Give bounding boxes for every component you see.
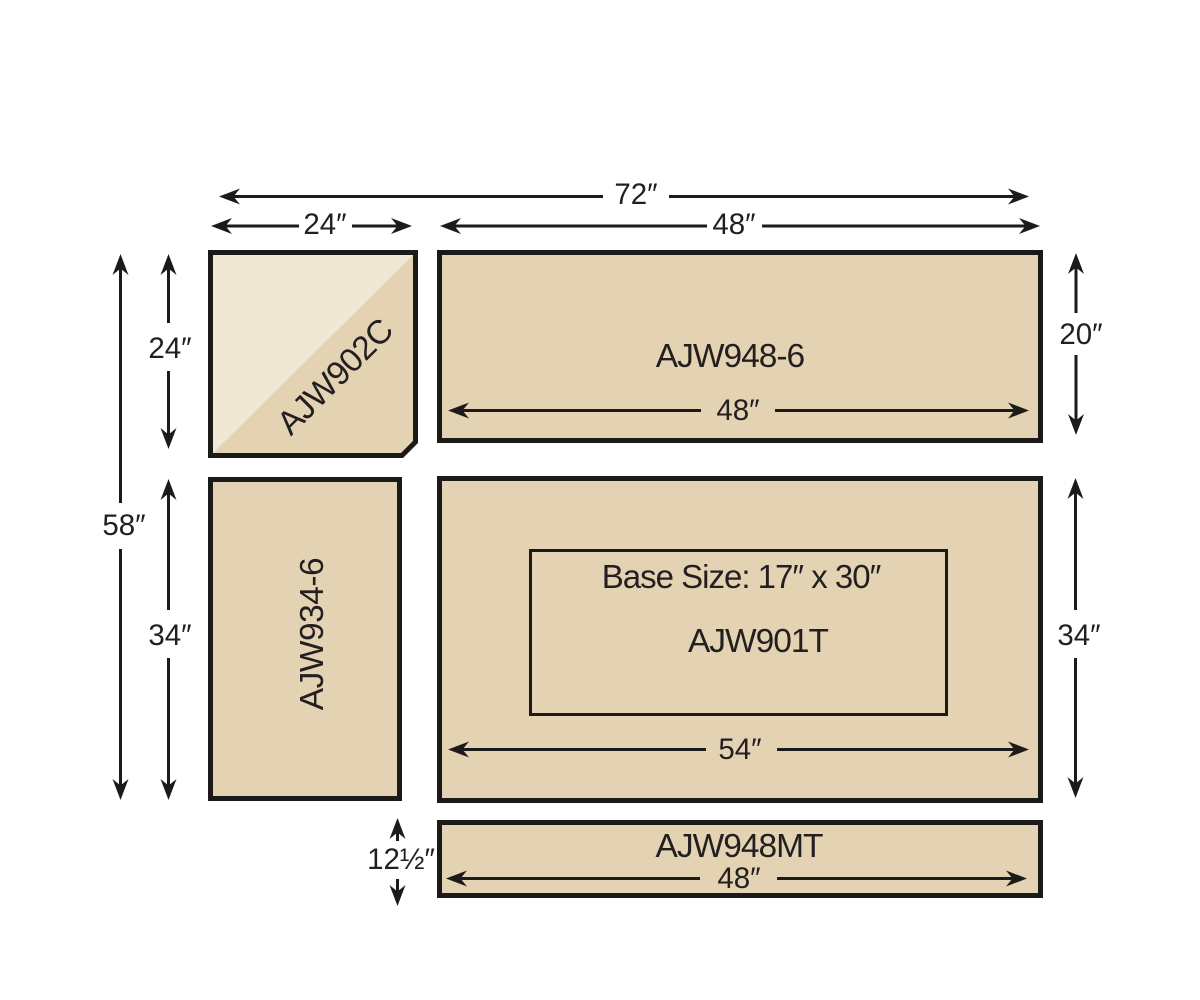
svg-text:54″: 54″ <box>718 733 761 766</box>
svg-text:12½″: 12½″ <box>367 843 435 876</box>
svg-text:AJW948MT: AJW948MT <box>656 828 824 865</box>
svg-text:58″: 58″ <box>102 509 145 542</box>
svg-text:24″: 24″ <box>148 332 191 365</box>
svg-text:48″: 48″ <box>712 208 755 241</box>
svg-text:34″: 34″ <box>148 619 191 652</box>
svg-text:24″: 24″ <box>303 208 346 241</box>
svg-text:34″: 34″ <box>1057 619 1100 652</box>
svg-text:48″: 48″ <box>717 862 760 895</box>
svg-text:AJW934-6: AJW934-6 <box>294 558 331 710</box>
svg-text:48″: 48″ <box>716 394 759 427</box>
svg-text:AJW948-6: AJW948-6 <box>656 338 805 375</box>
svg-text:Base Size: 17″ x 30″: Base Size: 17″ x 30″ <box>602 558 882 595</box>
svg-text:20″: 20″ <box>1059 318 1102 351</box>
svg-text:AJW901T: AJW901T <box>688 623 829 660</box>
svg-text:72″: 72″ <box>614 178 657 211</box>
